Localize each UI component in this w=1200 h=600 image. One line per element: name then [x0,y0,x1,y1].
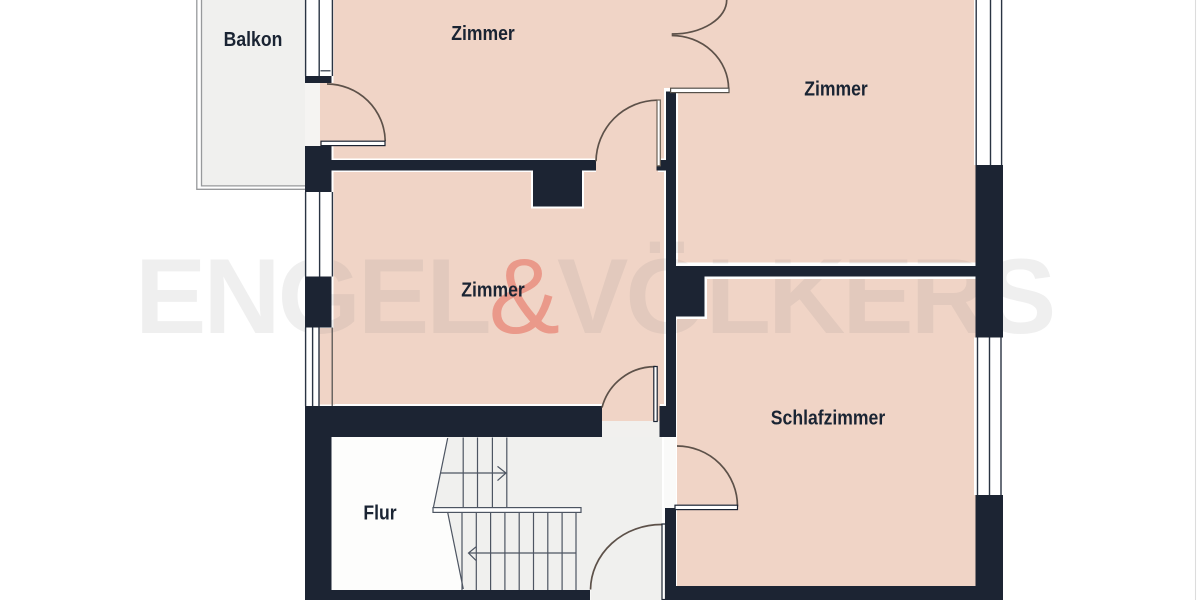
svg-text:ENGEL&VÖLKERS: ENGEL&VÖLKERS [135,236,1053,356]
svg-text:Zimmer: Zimmer [461,278,525,300]
svg-text:Flur: Flur [363,501,397,523]
svg-text:Zimmer: Zimmer [451,22,515,44]
svg-text:Schlafzimmer: Schlafzimmer [771,406,886,428]
svg-text:Zimmer: Zimmer [804,77,868,99]
svg-text:Balkon: Balkon [224,28,283,50]
